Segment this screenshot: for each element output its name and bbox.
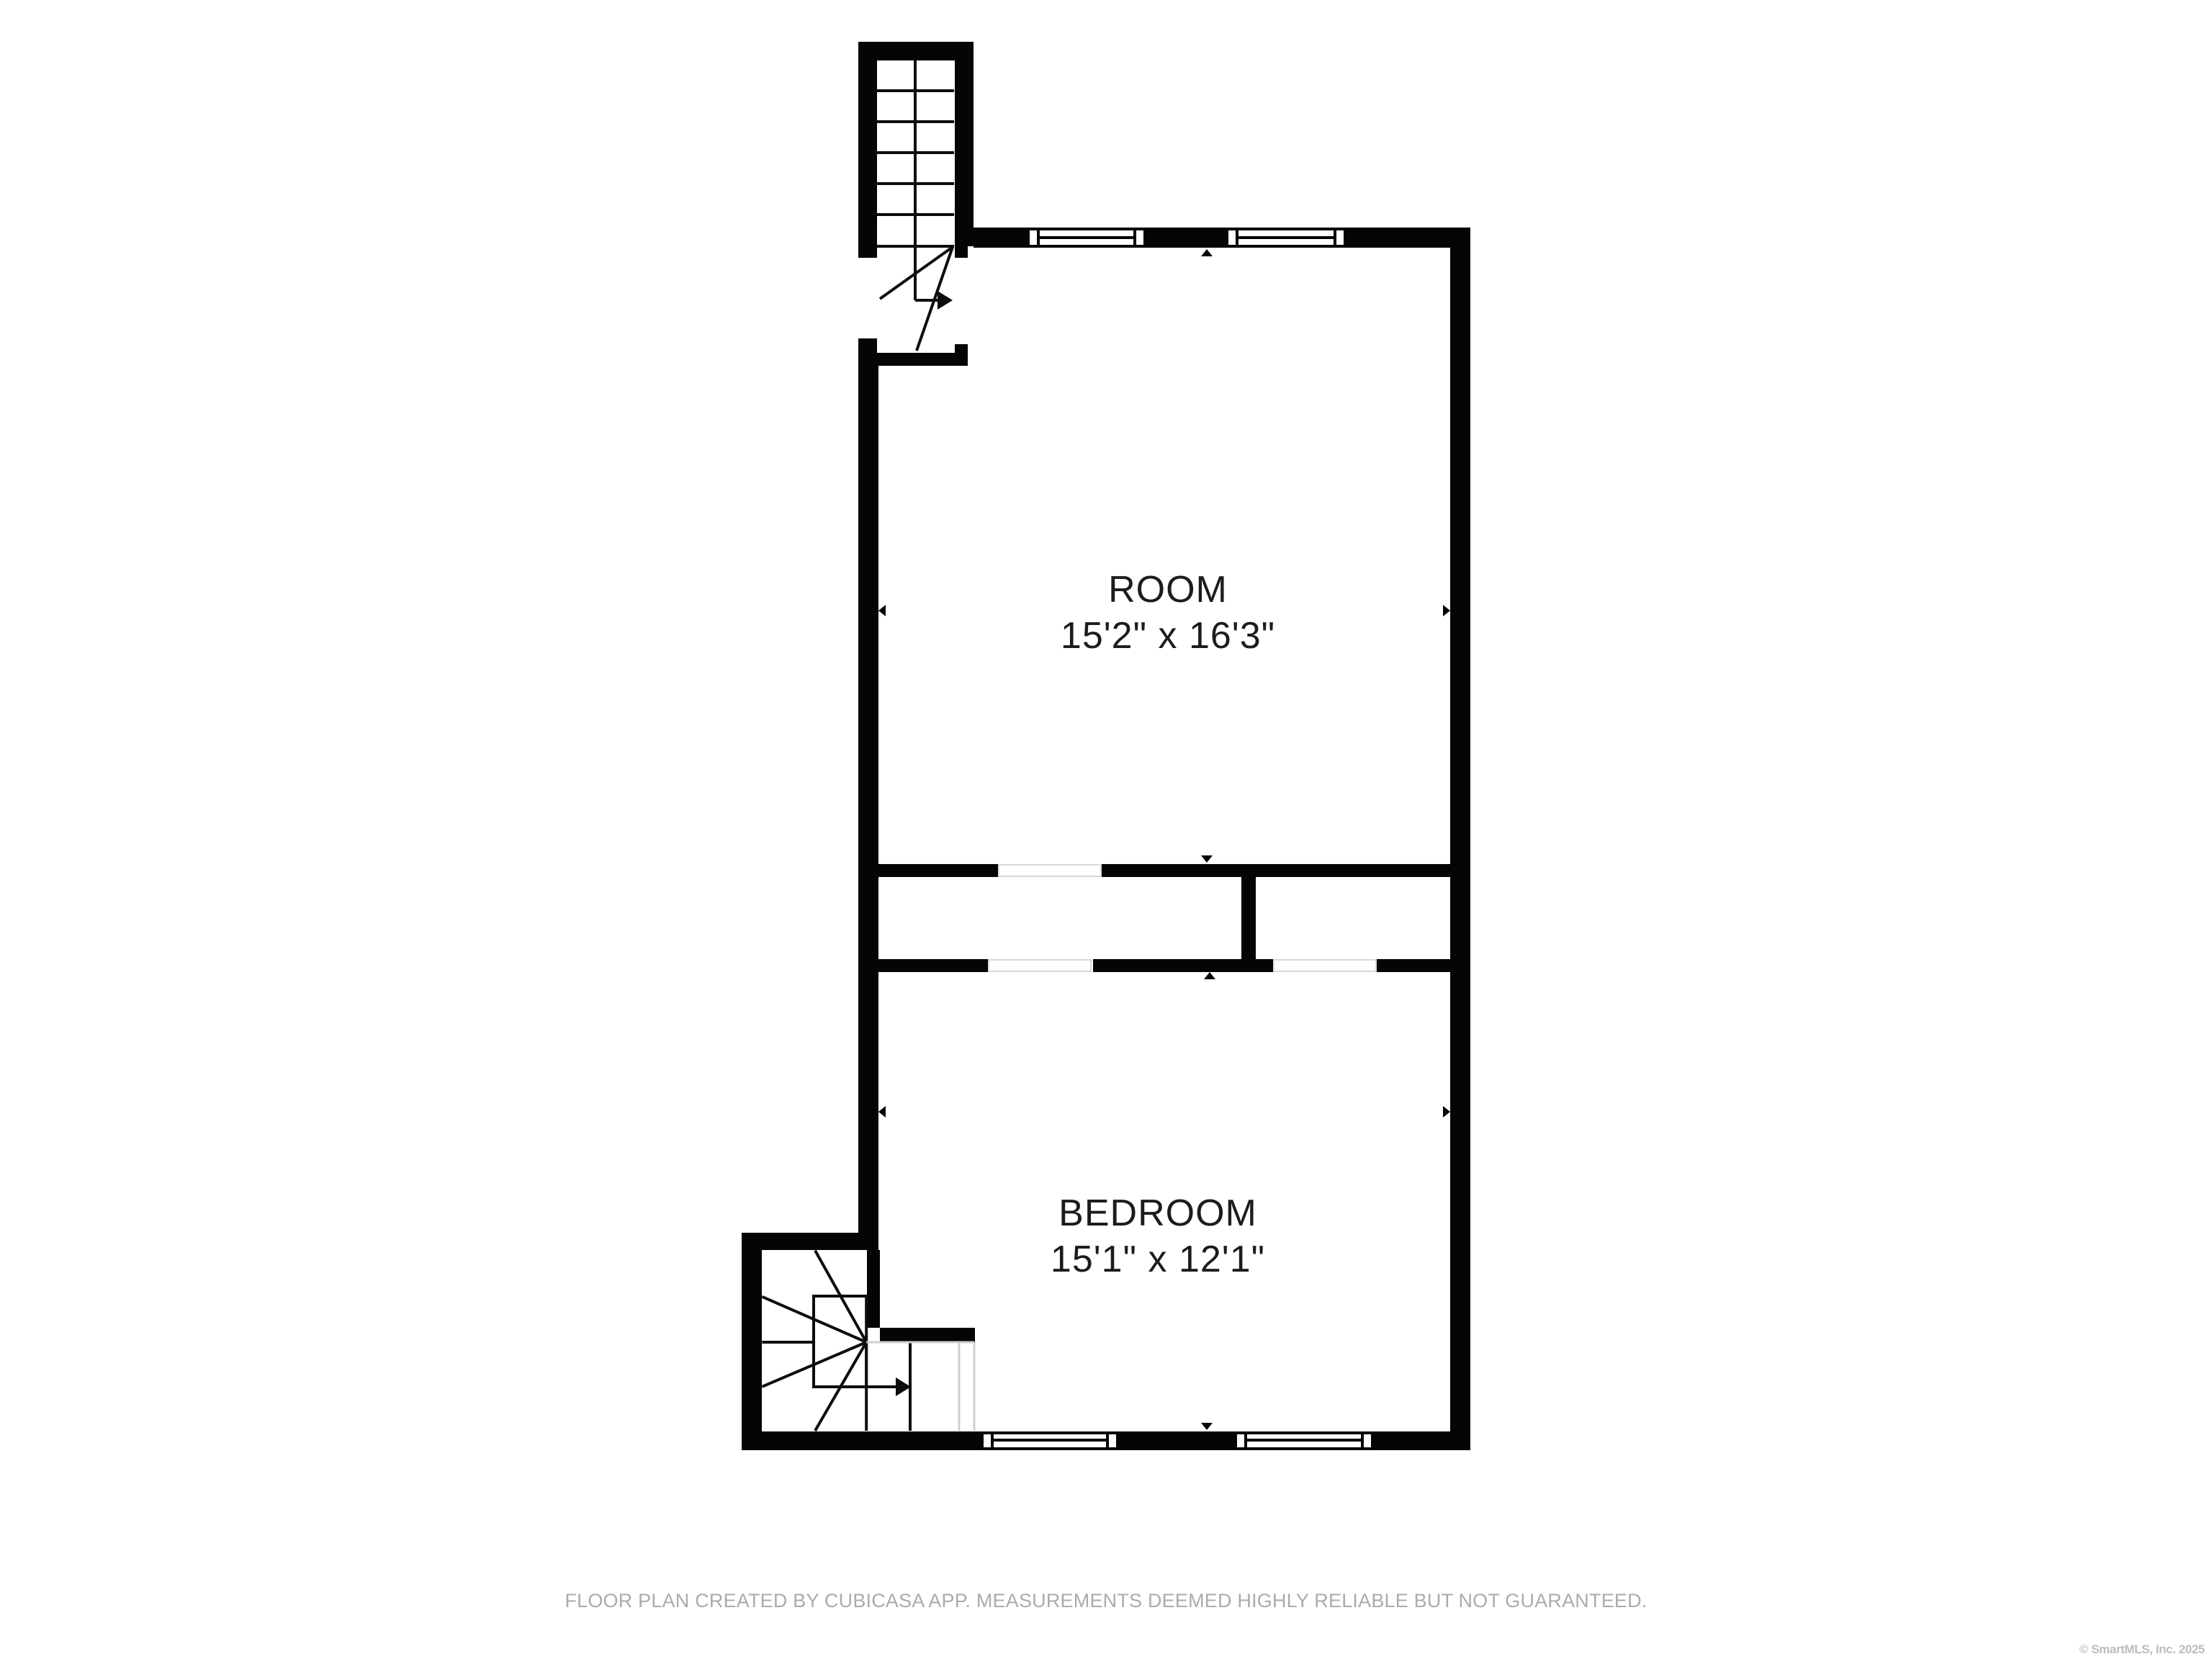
window-pane	[1040, 236, 1133, 239]
floor-plan: ROOM 15'2" x 16'3" BEDROOM 15'1" x 12'1"…	[0, 0, 2212, 1659]
door-opening	[997, 863, 1101, 877]
dimension-arrow-down-icon	[1200, 855, 1212, 863]
wall	[1241, 877, 1255, 958]
window-pane	[1238, 236, 1334, 239]
window	[981, 1431, 1119, 1450]
dimension-arrow-right-icon	[1442, 605, 1449, 616]
stair-direction-arrow-icon	[938, 291, 953, 310]
stairs-upper	[857, 40, 986, 374]
wall	[858, 365, 878, 1251]
room-dimensions: 15'2" x 16'3"	[952, 612, 1384, 658]
disclaimer-text: FLOOR PLAN CREATED BY CUBICASA APP. MEAS…	[0, 1590, 2212, 1611]
room-label: ROOM 15'2" x 16'3"	[952, 566, 1384, 658]
stair-direction-arrow-icon	[896, 1377, 911, 1396]
wall	[1092, 958, 1272, 972]
dimension-arrow-right-icon	[1442, 1105, 1449, 1117]
window-pane	[1106, 1434, 1109, 1447]
wall	[1377, 958, 1450, 972]
room-dimensions: 15'1" x 12'1"	[942, 1236, 1374, 1282]
window-pane	[1361, 1434, 1364, 1447]
window	[1226, 228, 1346, 248]
dimension-arrow-left-icon	[878, 1105, 886, 1117]
dimension-arrow-up-icon	[1200, 248, 1212, 256]
copyright-text: © SmartMLS, Inc. 2025	[2080, 1642, 2205, 1656]
dimension-arrow-down-icon	[1201, 1423, 1213, 1430]
wall	[1101, 863, 1450, 877]
door-opening	[989, 958, 1092, 972]
window	[1028, 228, 1146, 248]
window-pane	[994, 1439, 1106, 1442]
door-opening	[1272, 958, 1377, 972]
window-pane	[1334, 230, 1336, 245]
room-label: BEDROOM 15'1" x 12'1"	[942, 1190, 1374, 1282]
room-name: BEDROOM	[942, 1190, 1374, 1236]
wall	[874, 863, 997, 877]
window-pane	[1133, 230, 1136, 245]
room-name: ROOM	[952, 566, 1384, 612]
wall	[1450, 228, 1470, 1450]
dimension-arrow-left-icon	[878, 605, 886, 616]
wall	[874, 958, 989, 972]
dimension-arrow-up-icon	[1204, 972, 1215, 979]
window	[1234, 1431, 1374, 1450]
window-pane	[1247, 1439, 1361, 1442]
